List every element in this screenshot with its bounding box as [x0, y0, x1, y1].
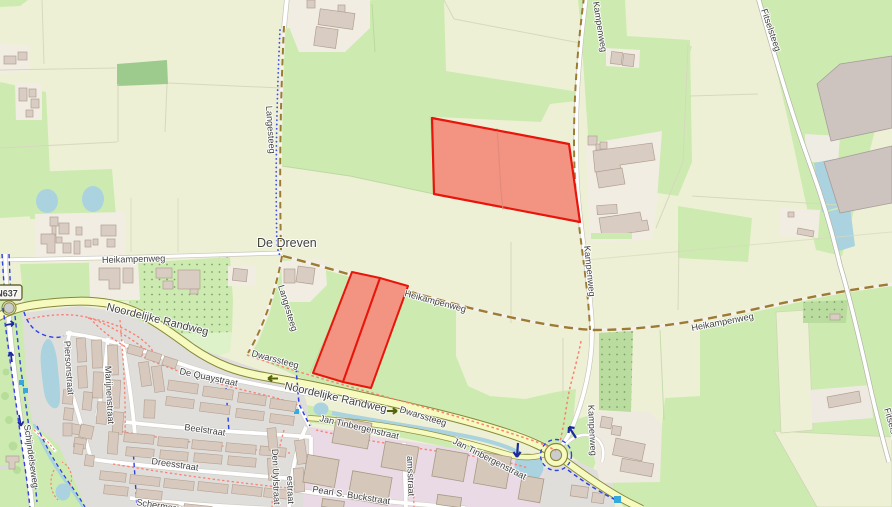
svg-text:De Dreven: De Dreven	[257, 236, 317, 250]
svg-text:amsstraat: amsstraat	[405, 456, 416, 497]
svg-text:estraat: estraat	[285, 476, 296, 505]
svg-text:N637: N637	[0, 289, 18, 299]
svg-text:Heikampenweg: Heikampenweg	[102, 253, 166, 265]
svg-text:Den Uylstraat: Den Uylstraat	[270, 449, 282, 505]
